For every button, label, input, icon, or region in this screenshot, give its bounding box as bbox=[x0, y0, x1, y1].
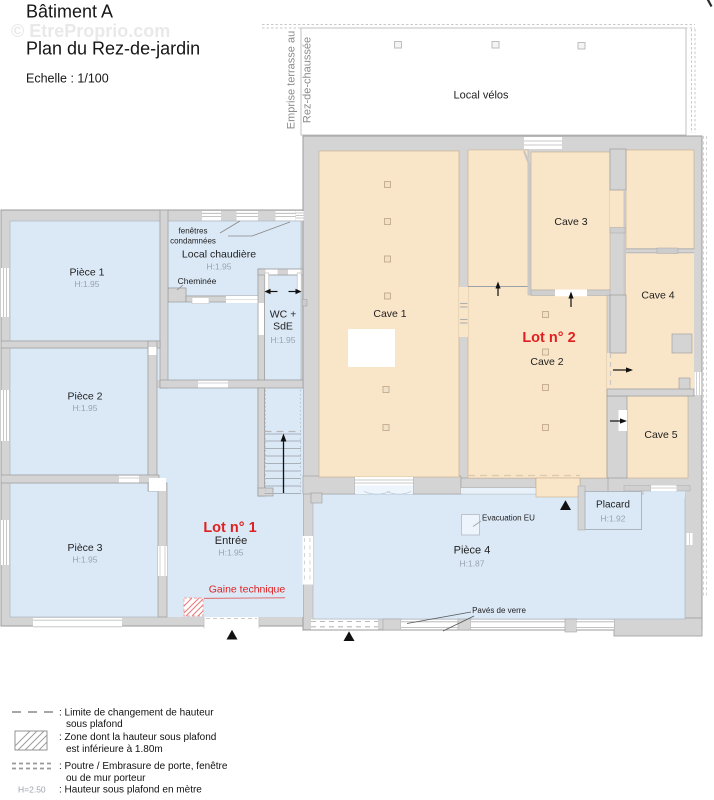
svg-text:: Zone dont la hauteur sous pl: : Zone dont la hauteur sous plafond bbox=[59, 732, 216, 743]
svg-text:Local chaudière: Local chaudière bbox=[182, 249, 256, 261]
svg-text:SdE: SdE bbox=[273, 321, 293, 333]
svg-text:Cave 4: Cave 4 bbox=[641, 290, 674, 302]
svg-text:fenêtres: fenêtres bbox=[179, 227, 208, 236]
svg-text:Gaine technique: Gaine technique bbox=[209, 584, 286, 596]
svg-text:Rez-de-chaussée: Rez-de-chaussée bbox=[302, 37, 314, 123]
svg-text:Pièce 4: Pièce 4 bbox=[454, 545, 491, 557]
svg-text:Cave 3: Cave 3 bbox=[554, 216, 587, 228]
svg-text:Pavés de verre: Pavés de verre bbox=[472, 606, 526, 615]
svg-text:: Limite de changement de haut: : Limite de changement de hauteur bbox=[59, 708, 214, 719]
svg-text:H:1.95: H:1.95 bbox=[218, 548, 243, 558]
svg-text:ou de mur porteur: ou de mur porteur bbox=[66, 773, 146, 784]
svg-text:H:1.95: H:1.95 bbox=[74, 279, 99, 289]
svg-text:H=2.50: H=2.50 bbox=[18, 785, 46, 795]
svg-text:Lot n° 2: Lot n° 2 bbox=[522, 330, 575, 346]
svg-text:Emprise terrasse au: Emprise terrasse au bbox=[286, 31, 298, 129]
svg-text:Cave 1: Cave 1 bbox=[373, 308, 406, 320]
svg-text:WC +: WC + bbox=[270, 309, 297, 321]
svg-text:est inférieure à 1.80m: est inférieure à 1.80m bbox=[66, 744, 163, 755]
svg-text:Bâtiment A: Bâtiment A bbox=[26, 2, 113, 22]
svg-text:: Hauteur sous plafond en mètr: : Hauteur sous plafond en mètre bbox=[59, 785, 202, 796]
svg-text:H:1.92: H:1.92 bbox=[600, 514, 625, 524]
svg-text:Echelle : 1/100: Echelle : 1/100 bbox=[26, 72, 109, 86]
svg-text:H:1.95: H:1.95 bbox=[72, 555, 97, 565]
svg-text:sous plafond: sous plafond bbox=[66, 719, 123, 730]
svg-text:condamnées: condamnées bbox=[170, 237, 216, 246]
svg-text:Cave 2: Cave 2 bbox=[530, 356, 563, 368]
svg-text:H:1.95: H:1.95 bbox=[270, 335, 295, 345]
svg-text:Evacuation EU: Evacuation EU bbox=[482, 514, 535, 523]
svg-text:: Poutre / Embrasure de porte,: : Poutre / Embrasure de porte, fenêtre bbox=[59, 761, 228, 772]
svg-text:Pièce 3: Pièce 3 bbox=[67, 542, 102, 554]
svg-text:Local vélos: Local vélos bbox=[453, 90, 509, 102]
svg-text:Placard: Placard bbox=[596, 500, 630, 511]
svg-text:Cheminée: Cheminée bbox=[178, 276, 217, 286]
svg-text:Pièce 1: Pièce 1 bbox=[69, 267, 104, 279]
svg-text:Pièce 2: Pièce 2 bbox=[67, 391, 102, 403]
svg-text:H:1.87: H:1.87 bbox=[459, 559, 484, 569]
svg-text:H:1.95: H:1.95 bbox=[206, 262, 231, 272]
svg-text:Entrée: Entrée bbox=[215, 535, 247, 547]
svg-text:H:1.95: H:1.95 bbox=[72, 403, 97, 413]
svg-text:Cave 5: Cave 5 bbox=[644, 429, 677, 441]
svg-text:Lot n° 1: Lot n° 1 bbox=[203, 520, 256, 536]
svg-text:Plan du Rez-de-jardin: Plan du Rez-de-jardin bbox=[26, 39, 200, 59]
